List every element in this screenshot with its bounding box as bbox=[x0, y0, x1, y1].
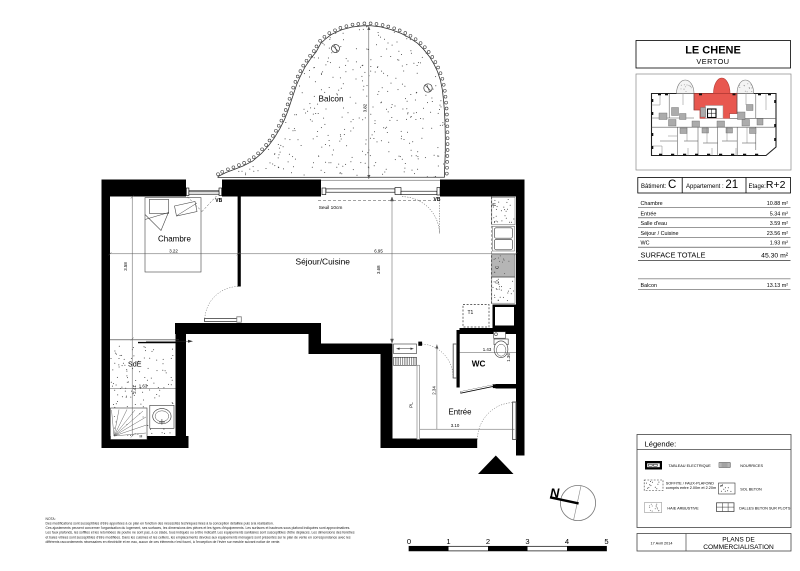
svg-text:SURFACE TOTALE: SURFACE TOTALE bbox=[641, 250, 706, 259]
svg-text:2: 2 bbox=[486, 537, 490, 546]
svg-text:Chambre: Chambre bbox=[641, 201, 663, 207]
svg-text:17 Avril 2014: 17 Avril 2014 bbox=[651, 541, 673, 545]
svg-text:COMMERCIALISATION: COMMERCIALISATION bbox=[703, 544, 774, 551]
svg-text:VB: VB bbox=[434, 197, 441, 203]
svg-text:Ces ajustements peuvent concer: Ces ajustements peuvent concerner l'orga… bbox=[46, 526, 351, 530]
svg-text:Entrée: Entrée bbox=[449, 407, 472, 416]
svg-text:Salle d'eau: Salle d'eau bbox=[641, 221, 668, 227]
svg-text:WC: WC bbox=[641, 241, 650, 247]
svg-text:1.43: 1.43 bbox=[483, 347, 492, 352]
svg-text:Des modifications sont suscept: Des modifications sont susceptibles d'êt… bbox=[46, 521, 274, 525]
svg-text:1.93 m²: 1.93 m² bbox=[770, 241, 788, 247]
svg-text:TABLEAU ELECTRIQUE: TABLEAU ELECTRIQUE bbox=[669, 464, 712, 468]
svg-text:0: 0 bbox=[407, 537, 411, 546]
svg-text:VERTOU: VERTOU bbox=[696, 57, 729, 66]
svg-text:1.63: 1.63 bbox=[139, 383, 148, 388]
svg-text:10.88 m²: 10.88 m² bbox=[767, 201, 788, 207]
svg-text:Séjour/Cuisine: Séjour/Cuisine bbox=[296, 256, 351, 266]
svg-text:5.34 m²: 5.34 m² bbox=[770, 211, 788, 217]
svg-text:et baies vitrées sont suscepti: et baies vitrées sont susceptibles d'êtr… bbox=[46, 535, 351, 539]
svg-text:Entrée: Entrée bbox=[641, 211, 657, 217]
svg-text:différents raccordements néces: différents raccordements nécessaires en … bbox=[46, 540, 281, 544]
svg-text:5: 5 bbox=[604, 537, 608, 546]
svg-text:1.36: 1.36 bbox=[506, 353, 511, 362]
svg-text:Les faux plafonds, les soffite: Les faux plafonds, les soffites et les r… bbox=[46, 531, 355, 535]
svg-text:3.82: 3.82 bbox=[363, 103, 368, 112]
svg-text:VB: VB bbox=[215, 198, 222, 204]
svg-text:HAIE ARBUSTIVE: HAIE ARBUSTIVE bbox=[667, 506, 699, 510]
svg-text:LE CHENE: LE CHENE bbox=[685, 45, 741, 57]
svg-text:3.10: 3.10 bbox=[451, 423, 460, 428]
svg-text:compris entre 2.00m et 2.20m: compris entre 2.00m et 2.20m bbox=[666, 486, 716, 490]
svg-text:2.34: 2.34 bbox=[431, 386, 436, 395]
svg-text:SdE: SdE bbox=[128, 360, 142, 369]
svg-text:PL: PL bbox=[408, 402, 413, 408]
svg-text:2.41: 2.41 bbox=[132, 385, 137, 394]
svg-text:3.68: 3.68 bbox=[376, 265, 381, 274]
svg-text:1: 1 bbox=[446, 537, 450, 546]
svg-text:13.13 m²: 13.13 m² bbox=[767, 283, 788, 289]
svg-text:Balcon: Balcon bbox=[319, 95, 344, 104]
svg-text:SOL BETON: SOL BETON bbox=[740, 487, 762, 491]
svg-text:3: 3 bbox=[525, 537, 529, 546]
svg-text:Chambre: Chambre bbox=[158, 235, 191, 244]
svg-text:23.56 m²: 23.56 m² bbox=[767, 231, 788, 237]
svg-text:PLANS DE: PLANS DE bbox=[722, 536, 755, 543]
svg-text:3.58: 3.58 bbox=[123, 262, 128, 271]
svg-text:4: 4 bbox=[565, 537, 569, 546]
svg-text:Seuil 10cm: Seuil 10cm bbox=[319, 205, 343, 211]
svg-text:Séjour / Cuisine: Séjour / Cuisine bbox=[641, 231, 679, 237]
svg-text:NOURRICES: NOURRICES bbox=[740, 464, 763, 468]
svg-text:N: N bbox=[550, 486, 560, 501]
svg-text:M: M bbox=[140, 435, 143, 439]
svg-text:6.95: 6.95 bbox=[374, 249, 383, 254]
svg-text:3.22: 3.22 bbox=[169, 249, 178, 254]
svg-text:WC: WC bbox=[472, 360, 486, 369]
svg-text:NOTA:: NOTA: bbox=[46, 517, 56, 521]
svg-text:3.59 m²: 3.59 m² bbox=[770, 221, 788, 227]
svg-text:SOFFITE / FAUX-PLAFOND: SOFFITE / FAUX-PLAFOND bbox=[666, 482, 715, 486]
svg-text:DALLES BETON SUR PLOTS: DALLES BETON SUR PLOTS bbox=[739, 506, 791, 510]
svg-text:Balcon: Balcon bbox=[641, 283, 657, 289]
svg-text:45.30 m²: 45.30 m² bbox=[761, 253, 789, 260]
svg-text:T1: T1 bbox=[468, 310, 474, 316]
svg-text:Légende:: Légende: bbox=[645, 440, 677, 449]
